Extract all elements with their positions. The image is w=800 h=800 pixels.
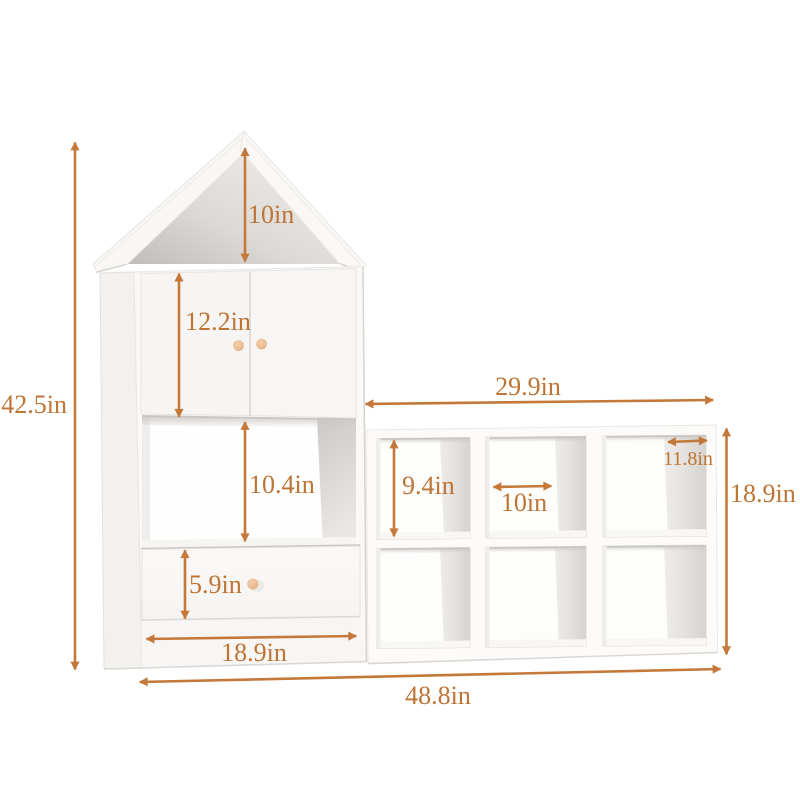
svg-text:10.4in: 10.4in <box>249 470 315 499</box>
svg-text:18.9in: 18.9in <box>221 638 287 667</box>
svg-text:9.4in: 9.4in <box>402 471 455 500</box>
svg-text:12.2in: 12.2in <box>185 307 251 336</box>
svg-text:5.9in: 5.9in <box>189 570 242 599</box>
svg-text:18.9in: 18.9in <box>730 479 796 508</box>
svg-text:48.8in: 48.8in <box>405 681 471 710</box>
svg-text:29.9in: 29.9in <box>495 372 561 401</box>
svg-text:42.5in: 42.5in <box>1 390 67 419</box>
svg-text:10in: 10in <box>248 200 294 229</box>
svg-text:10in: 10in <box>501 488 547 517</box>
svg-text:11.8in: 11.8in <box>663 448 713 470</box>
